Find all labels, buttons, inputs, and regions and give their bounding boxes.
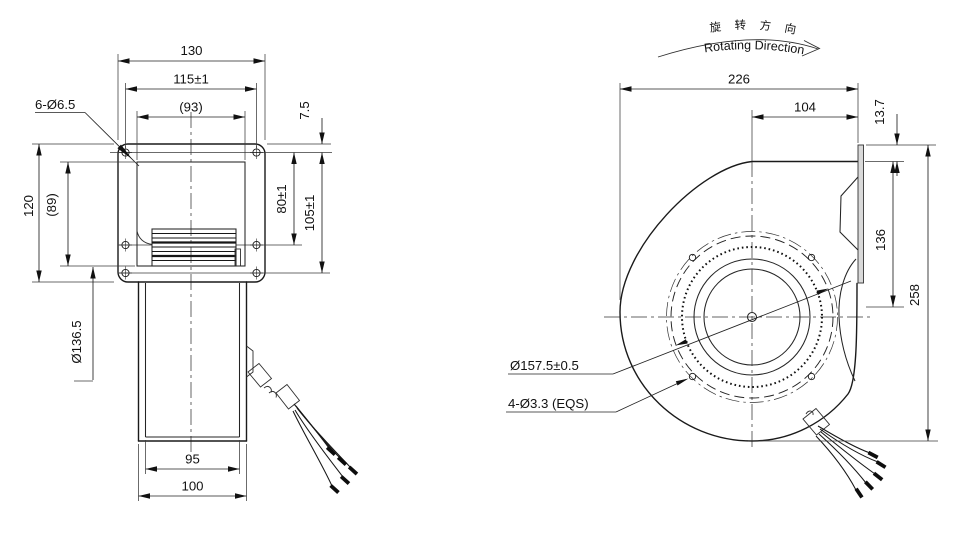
power-cable bbox=[803, 409, 887, 499]
leader-impeller-diameter bbox=[613, 281, 851, 374]
motor-cylinder bbox=[139, 282, 247, 441]
rotating-direction: 旋 转 方 向 Rotating Direction bbox=[658, 18, 820, 58]
dim-text-inner-height: (89) bbox=[44, 193, 59, 216]
dim-text-height-overall: 120 bbox=[21, 195, 36, 217]
dim-text-hole-pitch-v-upper: 80±1 bbox=[274, 184, 289, 213]
dim-text-flange-to-hole: 7.5 bbox=[297, 101, 312, 119]
dim-text-outlet-lip: 13.7 bbox=[872, 99, 887, 125]
dim-text-width-overall: 130 bbox=[180, 43, 202, 58]
dim-text-inner-width: (93) bbox=[179, 100, 202, 115]
power-cable bbox=[247, 346, 359, 494]
mounting-hole bbox=[250, 267, 263, 280]
left-view: 130 115±1 (93) 6-Ø6.5 120 (89) Ø136.5 bbox=[21, 43, 358, 501]
rotating-direction-label-en: Rotating Direction bbox=[703, 38, 805, 57]
dim-text-hole-pitch-v-lower: 105±1 bbox=[302, 195, 317, 232]
dim-text-outlet-inner-width: 95 bbox=[185, 452, 200, 467]
scroll-housing-outline bbox=[620, 162, 858, 442]
impeller-grille bbox=[152, 229, 241, 266]
dim-text-center-to-outlet: 104 bbox=[794, 100, 816, 115]
dim-text-body-diameter: Ø136.5 bbox=[69, 320, 84, 363]
mounting-hole bbox=[250, 239, 263, 252]
housing-fillet bbox=[137, 231, 152, 245]
cable-gland bbox=[247, 346, 254, 377]
dim-text-height-overall: 258 bbox=[907, 284, 922, 306]
volute-tongue bbox=[839, 259, 856, 381]
dim-text-outlet-height: 136 bbox=[873, 229, 888, 251]
outlet-flange-plate bbox=[858, 145, 864, 283]
mounting-hole bbox=[119, 239, 132, 252]
dim-text-hole-pitch-h: 115±1 bbox=[173, 72, 209, 87]
rotating-direction-label-cn: 旋 转 方 向 bbox=[709, 18, 803, 38]
mounting-hole bbox=[119, 267, 132, 280]
wire-tips bbox=[326, 446, 358, 494]
right-view: 旋 转 方 向 Rotating Direction bbox=[506, 18, 938, 499]
technical-drawing: 130 115±1 (93) 6-Ø6.5 120 (89) Ø136.5 bbox=[0, 0, 960, 536]
dim-text-depth-overall: 226 bbox=[728, 72, 750, 87]
flange-outline bbox=[118, 144, 265, 282]
label-mount-holes: 6-Ø6.5 bbox=[35, 97, 75, 112]
label-impeller-holes: 4-Ø3.3 (EQS) bbox=[508, 396, 589, 411]
drawing-canvas: 130 115±1 (93) 6-Ø6.5 120 (89) Ø136.5 bbox=[0, 0, 960, 536]
outlet-bracket bbox=[840, 177, 858, 250]
dim-text-outlet-outer-width: 100 bbox=[181, 479, 203, 494]
label-impeller-diameter: Ø157.5±0.5 bbox=[510, 358, 579, 373]
leader-impeller-holes bbox=[616, 380, 686, 413]
